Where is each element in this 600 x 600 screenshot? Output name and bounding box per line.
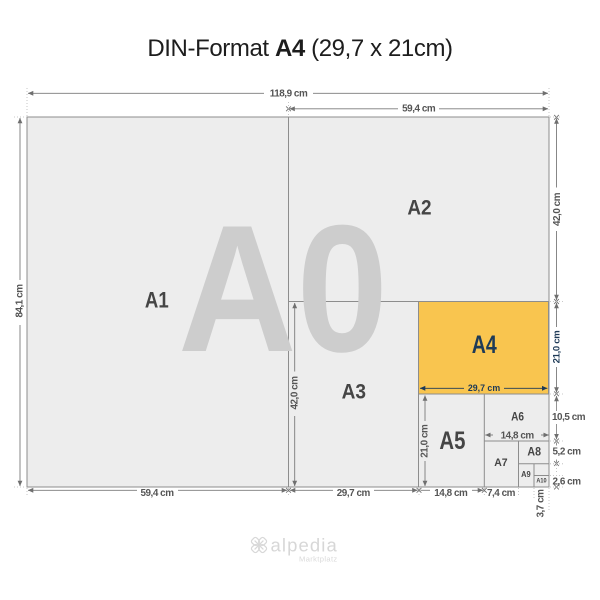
svg-text:42,0 cm: 42,0 cm <box>290 376 301 410</box>
svg-text:10,5 cm: 10,5 cm <box>552 412 586 423</box>
svg-text:21,0 cm: 21,0 cm <box>419 424 430 458</box>
svg-text:A8: A8 <box>527 445 541 458</box>
svg-text:5,2 cm: 5,2 cm <box>553 447 582 458</box>
svg-text:A10: A10 <box>536 478 547 485</box>
svg-text:29,7 cm: 29,7 cm <box>337 488 371 499</box>
svg-text:A1: A1 <box>145 288 169 313</box>
svg-text:7,4 cm: 7,4 cm <box>487 488 516 499</box>
svg-text:29,7 cm: 29,7 cm <box>468 383 500 393</box>
svg-text:A6: A6 <box>511 411 524 424</box>
svg-text:alpedia: alpedia <box>271 535 338 556</box>
svg-text:A0: A0 <box>178 188 388 390</box>
svg-text:A9: A9 <box>521 470 531 479</box>
svg-text:14,8 cm: 14,8 cm <box>434 488 468 499</box>
svg-text:21,0 cm: 21,0 cm <box>552 331 563 364</box>
svg-text:A7: A7 <box>494 457 507 469</box>
svg-text:42,0 cm: 42,0 cm <box>552 192 563 226</box>
svg-text:A2: A2 <box>407 196 431 219</box>
svg-text:59,4 cm: 59,4 cm <box>140 488 174 499</box>
svg-text:59,4 cm: 59,4 cm <box>402 104 436 115</box>
svg-text:84,1 cm: 84,1 cm <box>15 284 26 318</box>
svg-text:118,9 cm: 118,9 cm <box>270 88 308 99</box>
svg-text:3,7 cm: 3,7 cm <box>535 489 546 518</box>
svg-text:14,8 cm: 14,8 cm <box>501 431 535 442</box>
svg-text:Marktplatz: Marktplatz <box>299 555 338 564</box>
svg-text:A4: A4 <box>472 331 497 359</box>
svg-text:A5: A5 <box>439 427 465 455</box>
svg-text:2,6 cm: 2,6 cm <box>553 476 582 487</box>
svg-text:A3: A3 <box>342 380 366 404</box>
